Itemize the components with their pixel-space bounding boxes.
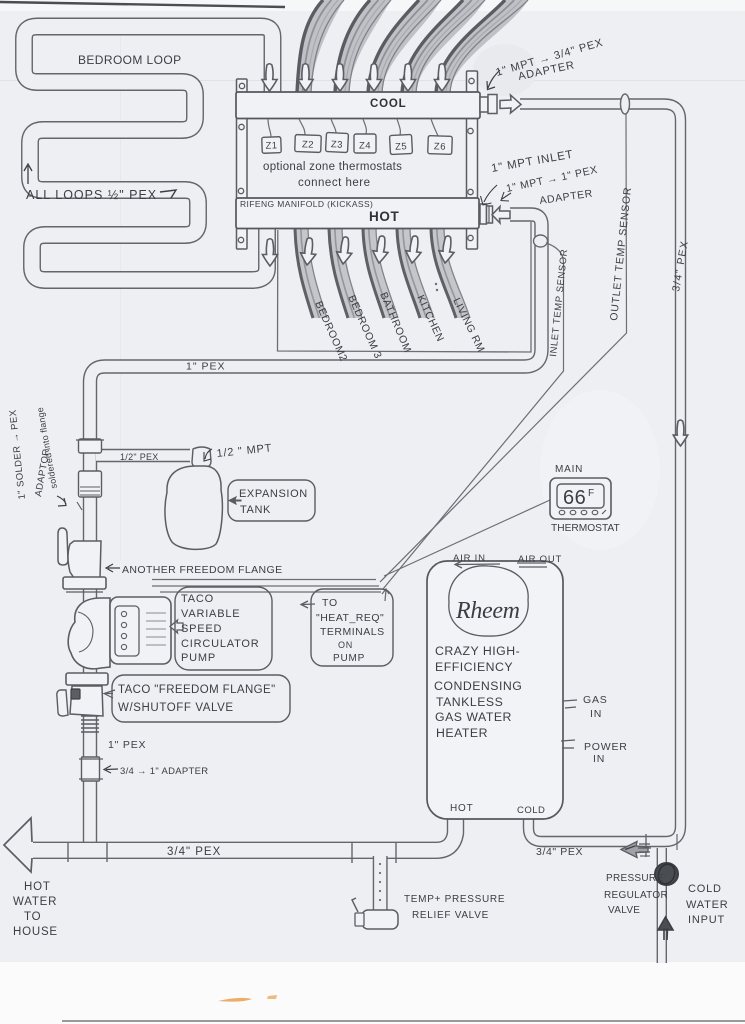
svg-text:Rheem: Rheem bbox=[455, 598, 520, 624]
svg-text:"HEAT_REQ": "HEAT_REQ" bbox=[316, 612, 384, 624]
svg-text:EXPANSION: EXPANSION bbox=[239, 488, 308, 500]
svg-text:3/4" PEX: 3/4" PEX bbox=[167, 846, 221, 858]
svg-text:Z4: Z4 bbox=[359, 141, 371, 152]
svg-text:F: F bbox=[588, 488, 594, 499]
svg-text:GAS WATER: GAS WATER bbox=[435, 710, 512, 724]
svg-text:CIRCULATOR: CIRCULATOR bbox=[181, 638, 260, 650]
svg-text:3/4 → 1" ADAPTER: 3/4 → 1" ADAPTER bbox=[120, 766, 208, 777]
svg-text:IN: IN bbox=[590, 708, 602, 720]
svg-text:TEMP+ PRESSURE: TEMP+ PRESSURE bbox=[404, 894, 505, 905]
svg-text:Z3: Z3 bbox=[331, 139, 344, 151]
svg-text:HEATER: HEATER bbox=[436, 726, 488, 740]
svg-text:TANK: TANK bbox=[240, 504, 271, 516]
svg-text:Z1: Z1 bbox=[265, 140, 277, 151]
svg-text:IN: IN bbox=[593, 753, 605, 765]
svg-text:CRAZY HIGH-: CRAZY HIGH- bbox=[435, 644, 520, 658]
svg-text:VALVE: VALVE bbox=[608, 905, 640, 916]
svg-text:WATER: WATER bbox=[686, 899, 729, 911]
svg-text:Z2: Z2 bbox=[302, 139, 314, 150]
svg-text:HOT: HOT bbox=[24, 881, 51, 893]
svg-text:RIFENG MANIFOLD (KICKASS): RIFENG MANIFOLD (KICKASS) bbox=[240, 199, 373, 209]
svg-text:ANOTHER FREEDOM FLANGE: ANOTHER FREEDOM FLANGE bbox=[122, 564, 282, 576]
svg-text:PUMP: PUMP bbox=[181, 652, 216, 664]
svg-text:MAIN: MAIN bbox=[555, 464, 583, 475]
svg-text:INPUT: INPUT bbox=[688, 914, 725, 926]
svg-text:POWER: POWER bbox=[584, 741, 628, 753]
svg-text:Z5: Z5 bbox=[395, 141, 408, 153]
svg-text:TO: TO bbox=[322, 597, 338, 609]
svg-text:AIR OUT: AIR OUT bbox=[518, 554, 562, 565]
svg-text:GAS: GAS bbox=[583, 694, 608, 706]
svg-text:TACO "FREEDOM FLANGE": TACO "FREEDOM FLANGE" bbox=[118, 684, 276, 696]
svg-text:66: 66 bbox=[563, 487, 586, 509]
svg-text:VARIABLE: VARIABLE bbox=[181, 608, 240, 620]
svg-text:PUMP: PUMP bbox=[333, 653, 365, 664]
svg-text:COOL: COOL bbox=[370, 98, 406, 110]
svg-text:optional zone thermostats: optional zone thermostats bbox=[263, 161, 402, 173]
svg-text:RELIEF VALVE: RELIEF VALVE bbox=[412, 910, 489, 921]
svg-text:THERMOSTAT: THERMOSTAT bbox=[551, 523, 620, 534]
svg-text:WATER: WATER bbox=[13, 896, 57, 908]
svg-text:TO: TO bbox=[24, 911, 41, 923]
svg-text:TANKLESS: TANKLESS bbox=[436, 695, 503, 709]
svg-text:Z6: Z6 bbox=[434, 141, 446, 152]
svg-text:COLD: COLD bbox=[688, 883, 722, 895]
svg-text:W/SHUTOFF VALVE: W/SHUTOFF VALVE bbox=[118, 702, 234, 714]
svg-text:HOT: HOT bbox=[369, 209, 399, 224]
svg-text:SPEED: SPEED bbox=[181, 623, 222, 635]
svg-text:AIR IN: AIR IN bbox=[453, 553, 486, 564]
svg-text:COLD: COLD bbox=[517, 805, 545, 816]
svg-text:connect here: connect here bbox=[298, 177, 371, 189]
svg-text:TERMINALS: TERMINALS bbox=[320, 626, 385, 638]
svg-text:HOT: HOT bbox=[450, 803, 474, 814]
svg-text:1" PEX: 1" PEX bbox=[186, 361, 226, 373]
svg-text:CONDENSING: CONDENSING bbox=[434, 679, 522, 693]
svg-text:HOUSE: HOUSE bbox=[13, 926, 58, 938]
svg-text:3/4" PEX: 3/4" PEX bbox=[536, 846, 583, 858]
svg-text:PRESSURE: PRESSURE bbox=[606, 873, 663, 884]
svg-text:ON: ON bbox=[338, 640, 353, 650]
svg-text:BEDROOM LOOP: BEDROOM LOOP bbox=[78, 53, 181, 67]
svg-text:ALL LOOPS ½" PEX: ALL LOOPS ½" PEX bbox=[26, 188, 157, 202]
svg-text:1/2" PEX: 1/2" PEX bbox=[120, 452, 159, 462]
svg-text:1" PEX: 1" PEX bbox=[108, 739, 146, 751]
svg-text:REGULATOR: REGULATOR bbox=[604, 890, 668, 901]
svg-text:EFFICIENCY: EFFICIENCY bbox=[435, 660, 513, 674]
svg-text:TACO: TACO bbox=[181, 593, 214, 605]
